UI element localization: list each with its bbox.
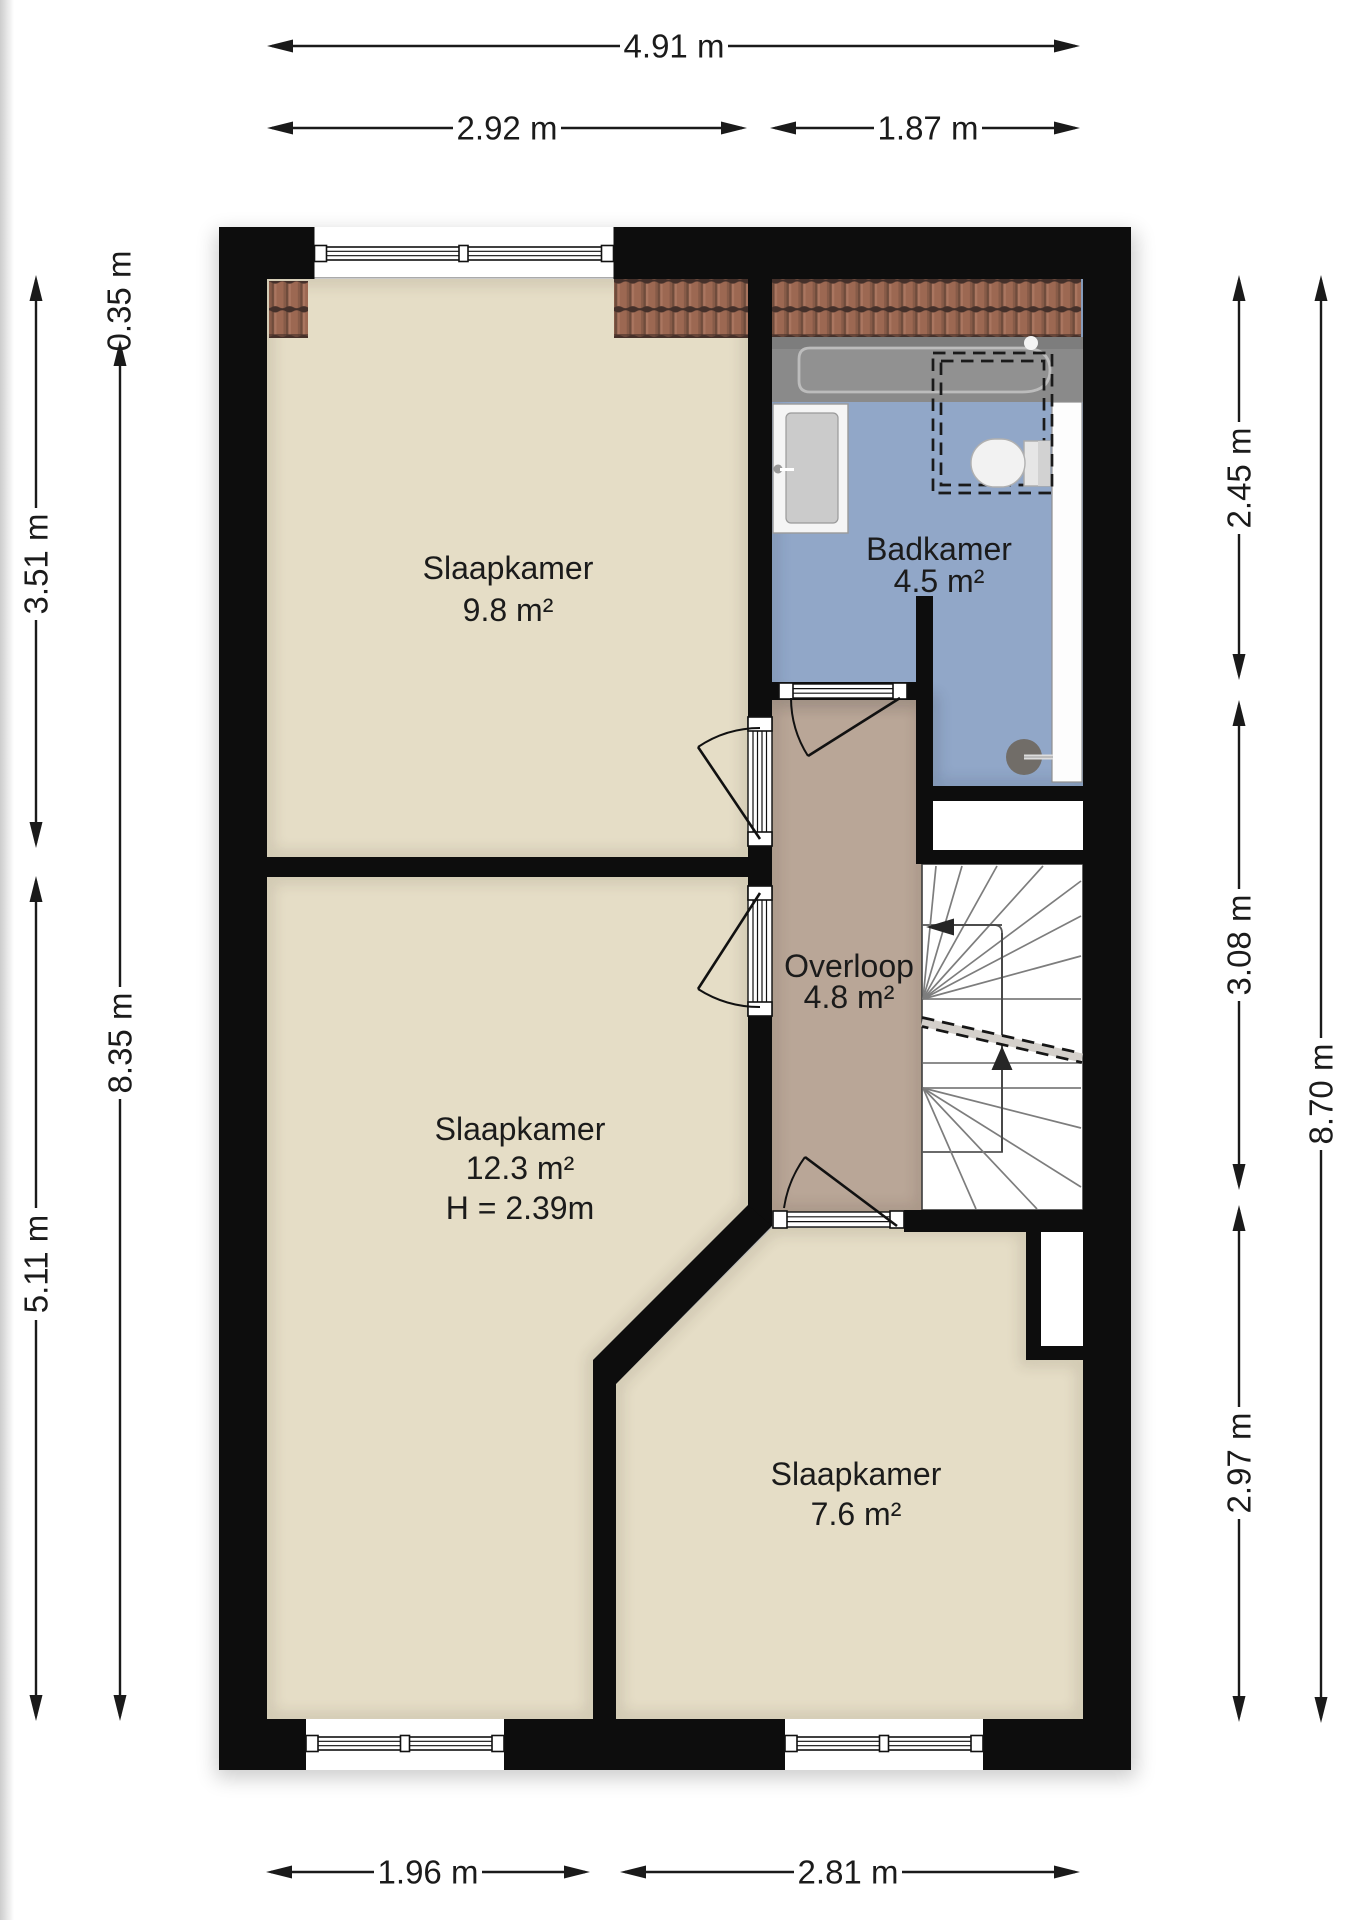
svg-text:0.35 m: 0.35 m bbox=[101, 251, 138, 352]
svg-text:3.08 m: 3.08 m bbox=[1221, 895, 1258, 996]
svg-text:4.91 m: 4.91 m bbox=[624, 28, 725, 65]
svg-text:Slaapkamer: Slaapkamer bbox=[435, 1111, 606, 1147]
svg-text:1.87 m: 1.87 m bbox=[878, 110, 979, 147]
svg-text:2.92 m: 2.92 m bbox=[457, 110, 558, 147]
svg-text:4.8 m²: 4.8 m² bbox=[804, 979, 895, 1015]
svg-text:8.70 m: 8.70 m bbox=[1303, 1044, 1340, 1145]
svg-text:2.81 m: 2.81 m bbox=[798, 1854, 899, 1891]
svg-text:7.6 m²: 7.6 m² bbox=[811, 1496, 902, 1532]
svg-text:1.96 m: 1.96 m bbox=[378, 1854, 479, 1891]
svg-text:2.45 m: 2.45 m bbox=[1221, 428, 1258, 529]
svg-text:Slaapkamer: Slaapkamer bbox=[423, 550, 594, 586]
svg-text:12.3 m²: 12.3 m² bbox=[466, 1150, 575, 1186]
svg-text:2.97 m: 2.97 m bbox=[1221, 1413, 1258, 1514]
svg-text:Slaapkamer: Slaapkamer bbox=[771, 1456, 942, 1492]
svg-text:5.11 m: 5.11 m bbox=[18, 1215, 55, 1313]
svg-text:H = 2.39m: H = 2.39m bbox=[446, 1190, 595, 1226]
svg-text:4.5 m²: 4.5 m² bbox=[894, 563, 985, 599]
svg-text:3.51 m: 3.51 m bbox=[18, 514, 55, 615]
svg-text:Badkamer: Badkamer bbox=[866, 531, 1012, 567]
svg-text:8.35 m: 8.35 m bbox=[102, 993, 139, 1094]
svg-text:9.8 m²: 9.8 m² bbox=[463, 592, 554, 628]
